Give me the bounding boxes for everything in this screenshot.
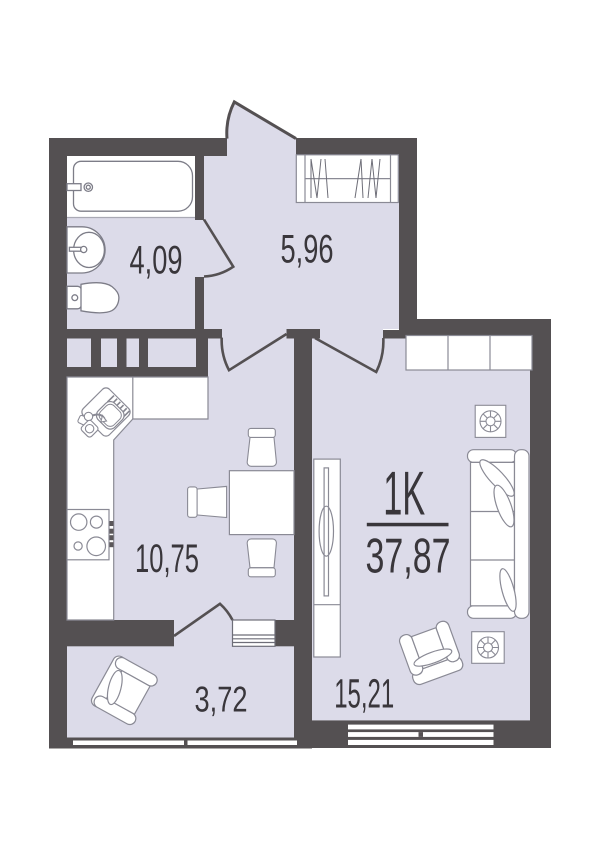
svg-text:10,75: 10,75	[135, 537, 199, 581]
svg-text:15,21: 15,21	[334, 671, 394, 717]
svg-text:1K: 1K	[383, 460, 425, 529]
svg-text:3,72: 3,72	[195, 678, 248, 719]
svg-text:5,96: 5,96	[281, 228, 334, 272]
svg-text:37,87: 37,87	[366, 530, 451, 584]
svg-text:4,09: 4,09	[130, 239, 183, 283]
